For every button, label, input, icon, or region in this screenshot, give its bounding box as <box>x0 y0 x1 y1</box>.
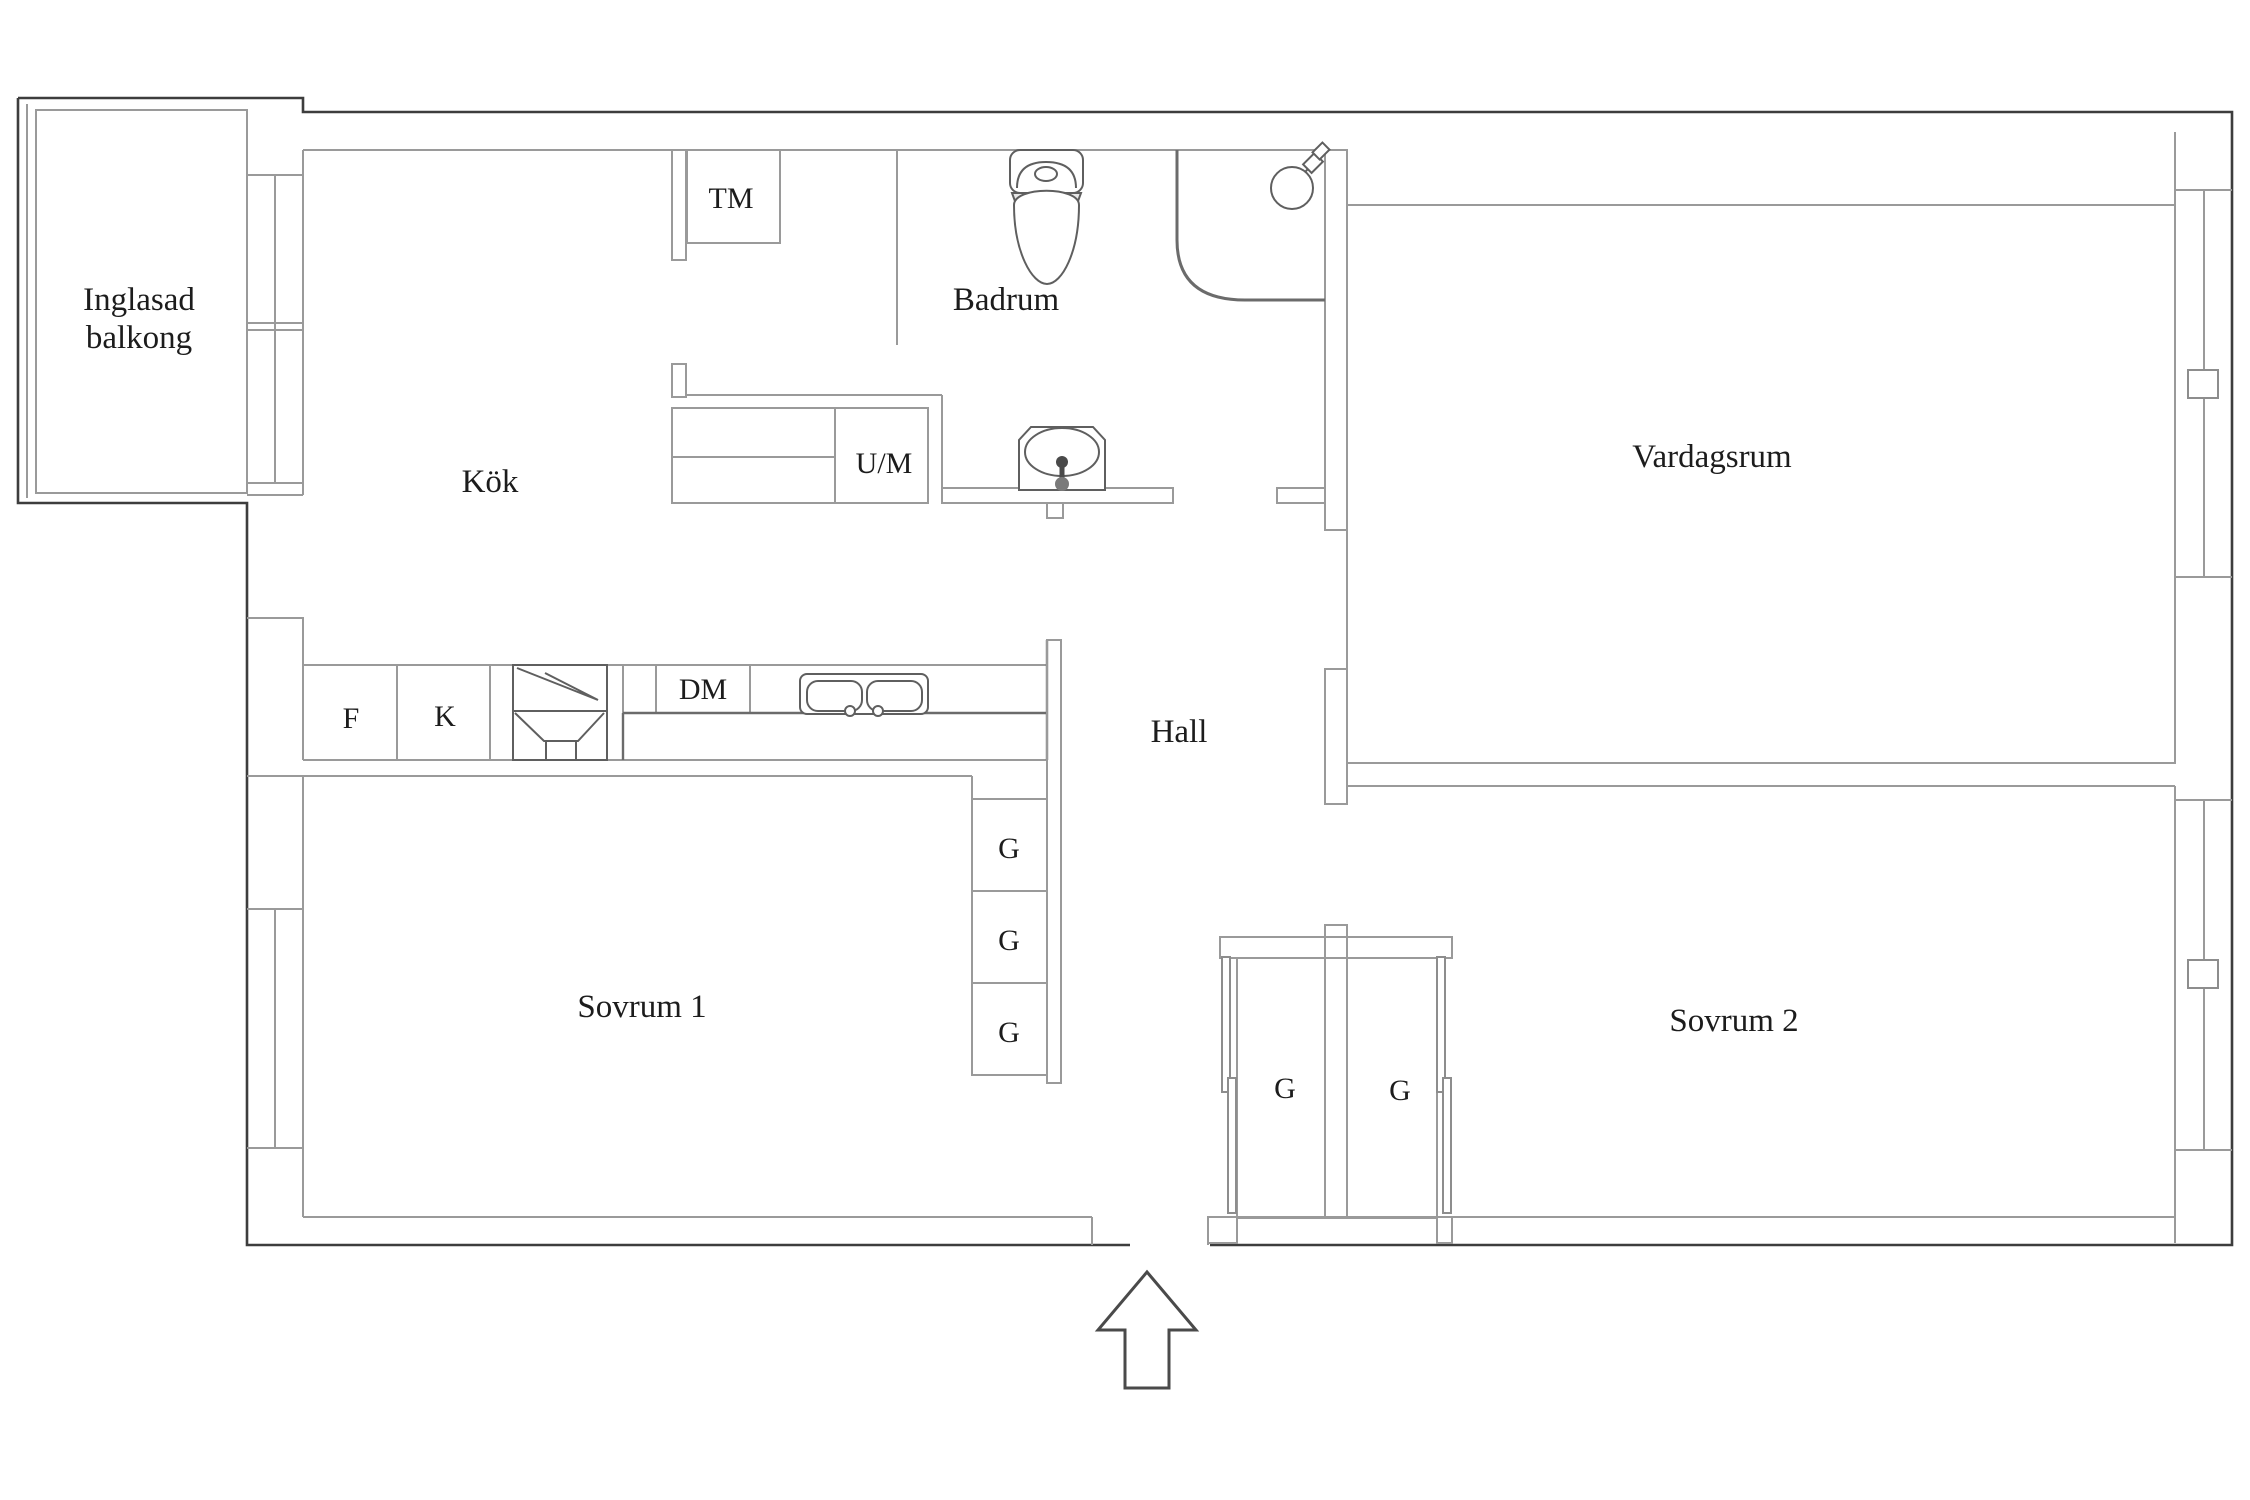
fridge-label: F <box>343 702 360 735</box>
bedroom2-label: Sovrum 2 <box>1669 1003 1798 1039</box>
balcony-label-line2: balkong <box>86 320 192 356</box>
bathroom-label: Badrum <box>953 282 1060 318</box>
kitchen-sink-icon <box>800 674 928 716</box>
hall-label: Hall <box>1151 714 1208 750</box>
wardrobe3-label: G <box>998 1016 1020 1049</box>
hall-wardrobe-left-label: G <box>1274 1072 1296 1105</box>
floor-plan: Inglasad balkong Kök TM Badrum U/M Varda… <box>0 0 2250 1500</box>
shower-icon <box>1177 143 1329 300</box>
exterior-wall-outline <box>18 98 2232 1245</box>
toilet-icon <box>1010 150 1083 284</box>
livingroom-bedroom2-wall <box>1347 763 2175 786</box>
floor-plan-canvas: Inglasad balkong Kök TM Badrum U/M Varda… <box>0 0 2250 1500</box>
hall-wardrobes <box>1208 925 1452 1243</box>
stove-icon <box>513 665 607 760</box>
wardrobe1-label: G <box>998 832 1020 865</box>
oven-micro-label: U/M <box>856 447 913 480</box>
hall-t-wall <box>1325 669 1347 804</box>
kitchen-cabinet-row <box>303 640 1047 760</box>
living-room-outline <box>1347 205 2175 763</box>
kitchen-label: Kök <box>462 464 519 500</box>
wardrobe2-label: G <box>998 924 1020 957</box>
kitchen-hall-wall <box>1047 640 1061 1083</box>
balcony-label-line1: Inglasad <box>83 282 195 318</box>
bedroom1-label: Sovrum 1 <box>577 989 706 1025</box>
dishwasher-label: DM <box>679 673 727 706</box>
living-room-label: Vardagsrum <box>1632 439 1792 475</box>
hall-wardrobe-right-label: G <box>1389 1074 1411 1107</box>
washbasin-icon <box>1019 427 1105 491</box>
right-wall-windows <box>2175 132 2232 1243</box>
freezer-label: K <box>434 700 456 733</box>
balcony-kitchen-window <box>247 150 303 495</box>
kitchen-step-wall <box>247 618 303 665</box>
entrance-arrow-icon <box>1098 1272 1196 1388</box>
washing-machine-label: TM <box>709 182 754 215</box>
bedroom1-window <box>247 909 303 1148</box>
tm-wall-stub <box>672 150 686 260</box>
kitchen-upper-counter <box>672 364 942 503</box>
